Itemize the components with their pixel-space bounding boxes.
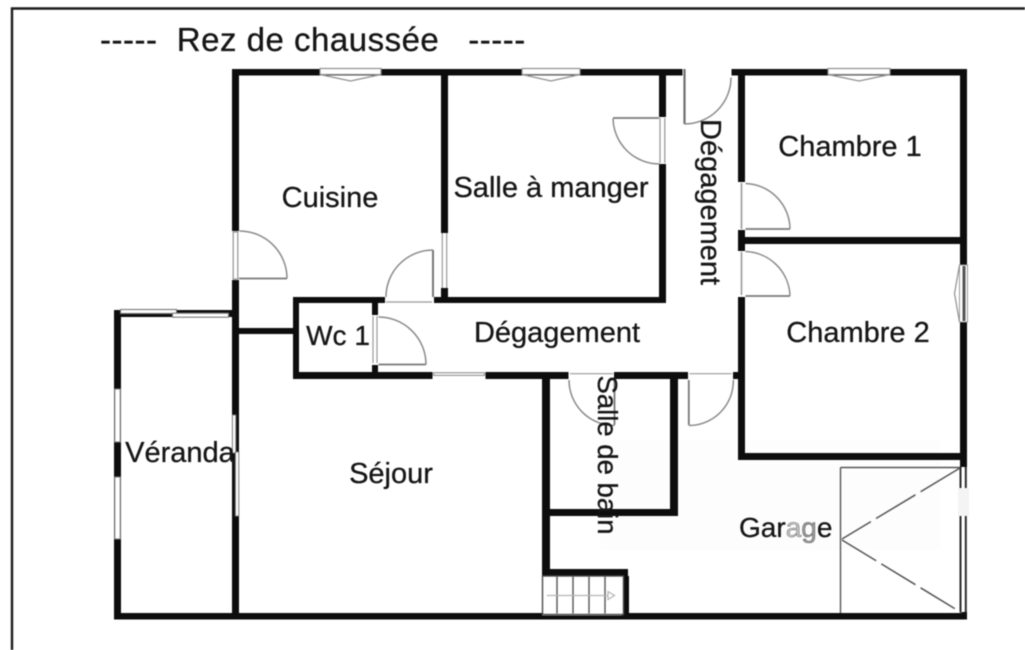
svg-text:Dégagement: Dégagement — [474, 317, 640, 349]
svg-text:Cuisine: Cuisine — [282, 182, 379, 214]
svg-text:Garage: Garage — [739, 512, 832, 543]
svg-text:Salle de bain: Salle de bain — [592, 376, 623, 535]
svg-text:Chambre 2: Chambre 2 — [786, 317, 929, 349]
svg-text:Dégagement: Dégagement — [694, 119, 726, 285]
svg-text:Wc 1: Wc 1 — [306, 320, 370, 351]
svg-text:Véranda: Véranda — [125, 437, 236, 469]
svg-text:Séjour: Séjour — [349, 458, 433, 490]
svg-text:Chambre 1: Chambre 1 — [778, 131, 921, 163]
svg-text:----- Rez de chaussée -----: ----- Rez de chaussée ----- — [100, 21, 526, 58]
svg-text:Salle à manger: Salle à manger — [453, 172, 648, 204]
